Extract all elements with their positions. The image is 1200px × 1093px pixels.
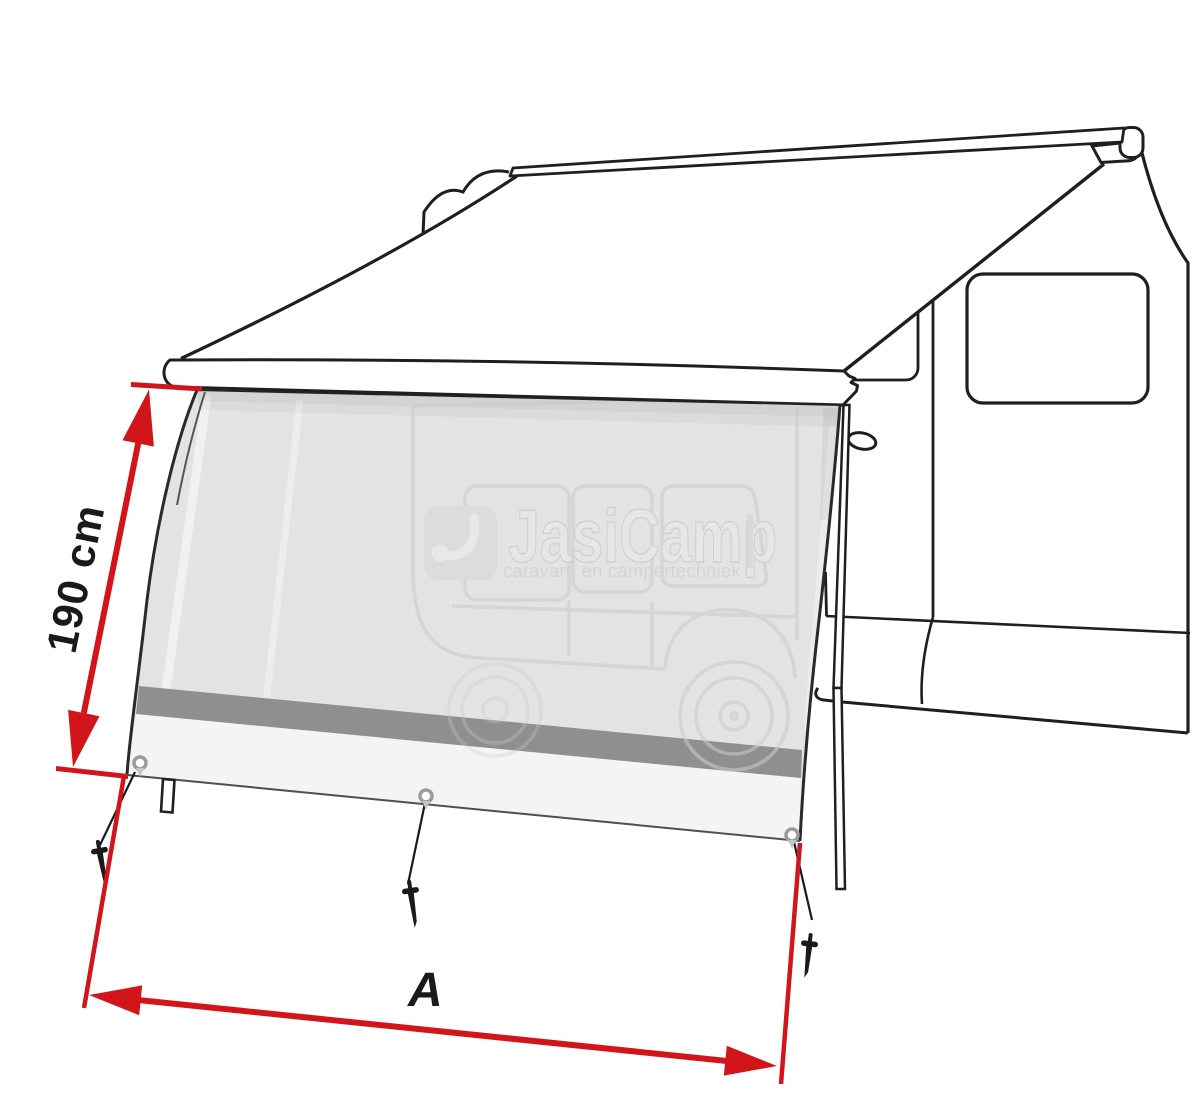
svg-text:caravan- en campertechniek: caravan- en campertechniek bbox=[503, 560, 741, 581]
svg-text:A: A bbox=[407, 964, 443, 1017]
